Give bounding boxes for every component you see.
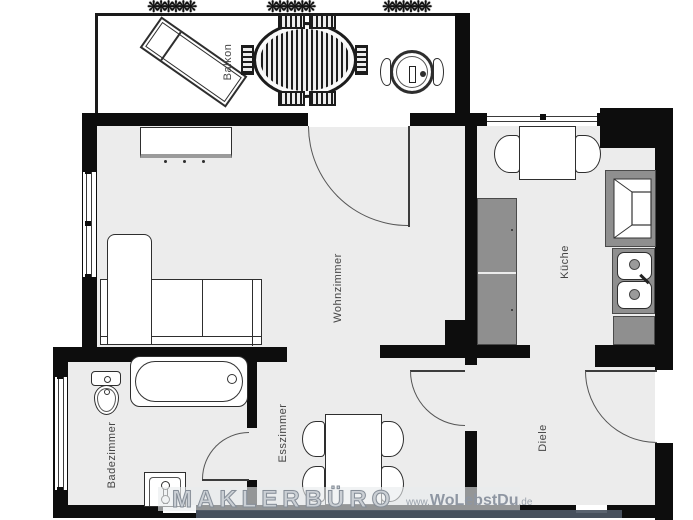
balcony-chair: [278, 14, 305, 29]
window-jamb: [57, 487, 63, 492]
sideboard: [140, 127, 232, 158]
watermark-url: www.WoLebstDu.de: [406, 492, 532, 510]
window-jamb: [85, 169, 91, 174]
plant-icon: ❋❋❋❋❋❋: [266, 0, 338, 16]
kitchen-table: [519, 126, 576, 180]
wall-living-kitchen: [465, 126, 477, 365]
balcony-chair: [355, 45, 368, 75]
balcony-table: [253, 22, 357, 98]
window-jamb: [85, 274, 91, 279]
kitchen-sink: [612, 248, 655, 314]
balcony-chair: [241, 45, 254, 75]
kitchen-chair: [494, 135, 520, 173]
window-jamb: [85, 221, 91, 226]
floor-plan: ❋❋❋❋❋❋ ❋❋❋❋❋❋ ❋❋❋❋❋❋ Balkon Wohnzimmer K…: [0, 0, 693, 520]
watermark-bar: [196, 510, 622, 518]
kitchen-counter-lower: [613, 316, 655, 345]
balcony-wall-left: [95, 13, 98, 113]
bistro-chair: [433, 58, 444, 86]
balcony-wall-right: [455, 13, 470, 113]
plant-icon: ❋❋❋❋❋❋: [382, 0, 452, 16]
bathroom-door-leaf: [202, 479, 249, 481]
wall-kitchen-bottom: [595, 345, 657, 367]
bistro-chair: [380, 58, 391, 86]
sideboard-handle: [164, 160, 167, 163]
room-label-kueche: Küche: [557, 202, 573, 322]
room-label-wohnzimmer: Wohnzimmer: [330, 228, 346, 348]
sideboard-handle: [183, 160, 186, 163]
room-label-esszimmer: Esszimmer: [275, 373, 291, 493]
dining-chair: [302, 421, 325, 457]
balcony-chair: [278, 91, 305, 106]
wall-bath-dining-upper: [247, 347, 257, 428]
room-label-balkon: Balkon: [220, 2, 236, 122]
watermark-url-prefix: www.: [406, 497, 430, 508]
kitchen-counter: [477, 198, 517, 345]
sofa-chaise: [107, 234, 152, 344]
bathtub: [130, 356, 248, 407]
plant-icon: ❋❋❋❋❋❋: [147, 0, 217, 16]
room-label-diele: Diele: [535, 378, 551, 498]
window-jamb: [57, 374, 63, 379]
balcony-chair: [309, 91, 336, 106]
wall-pillar: [445, 320, 465, 347]
wall-right-upper: [655, 126, 673, 370]
window-jamb: [540, 114, 546, 120]
dining-hall-door-opening: [465, 365, 477, 431]
balcony-door-opening: [308, 111, 410, 127]
bistro-table: [390, 50, 434, 94]
room-label-badezimmer: Badezimmer: [104, 395, 120, 515]
balcony-door-leaf: [408, 126, 410, 227]
balcony-chair: [309, 14, 336, 29]
stove: [606, 171, 655, 246]
sideboard-handle: [202, 160, 205, 163]
bathroom-window: [55, 377, 67, 490]
watermark-url-suffix: .de: [519, 497, 533, 508]
entrance-door-opening: [655, 370, 677, 443]
toilet: [91, 371, 121, 386]
watermark-url-main: WoLebstDu: [430, 492, 519, 509]
